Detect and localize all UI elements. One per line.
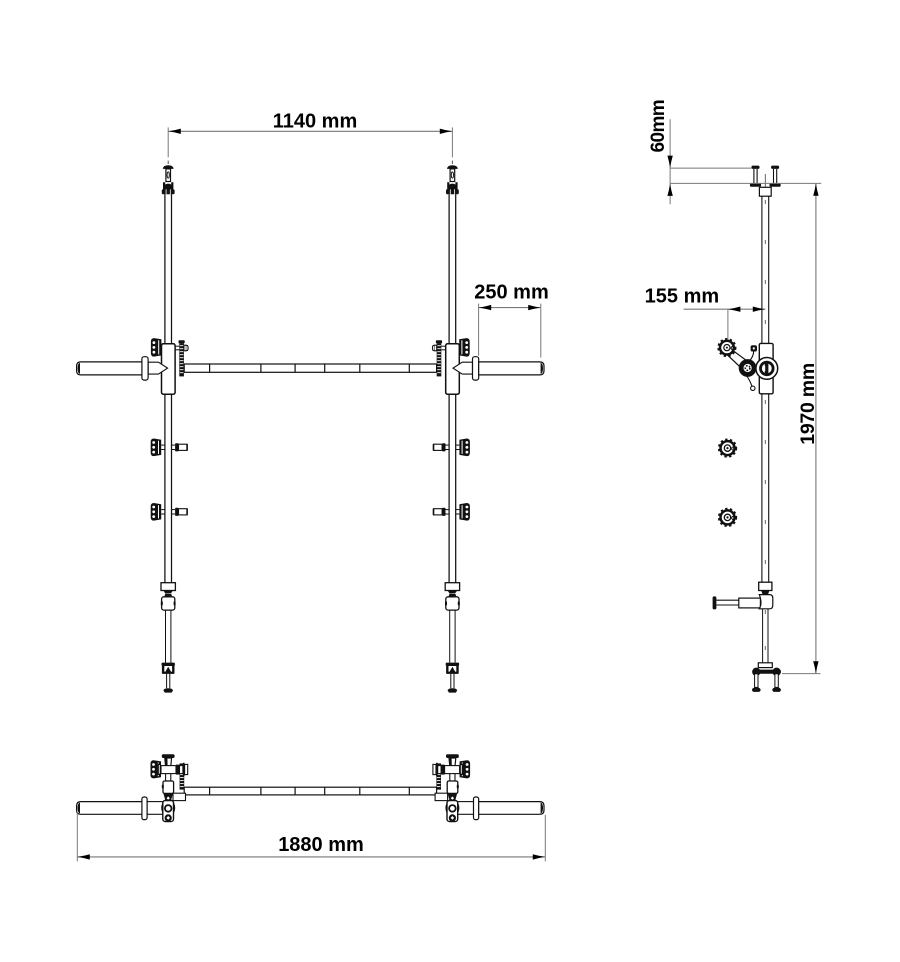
svg-text:250 mm: 250 mm (474, 282, 549, 304)
svg-text:1880 mm: 1880 mm (278, 834, 364, 856)
svg-text:1970 mm: 1970 mm (797, 363, 819, 445)
svg-text:60mm: 60mm (648, 100, 669, 153)
svg-text:1140 mm: 1140 mm (273, 110, 358, 132)
svg-text:155 mm: 155 mm (645, 286, 720, 308)
